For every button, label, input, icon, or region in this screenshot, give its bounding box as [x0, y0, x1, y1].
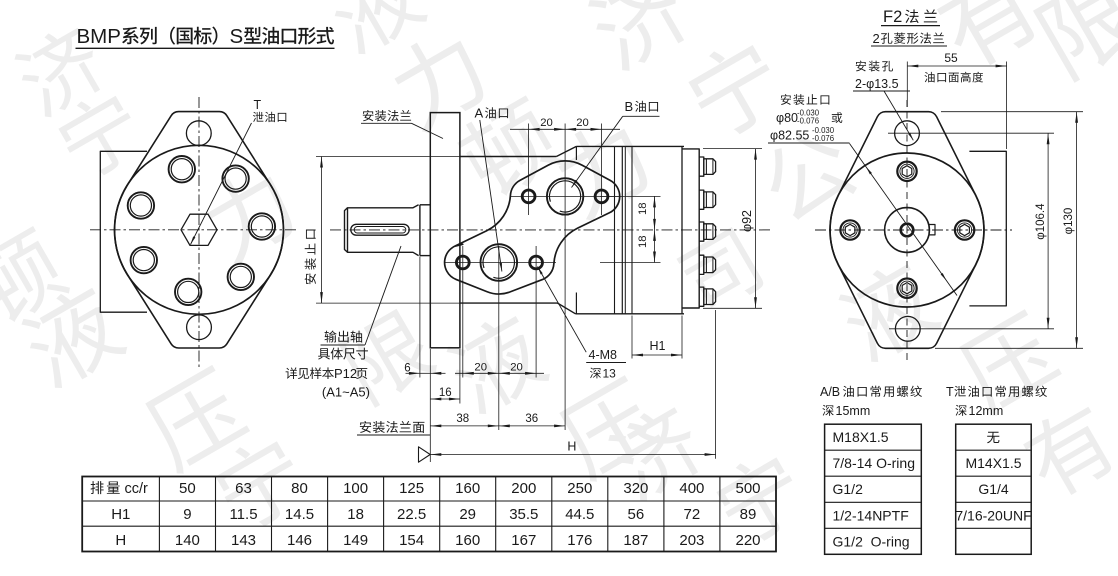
svg-text:140: 140: [175, 532, 200, 549]
svg-text:55: 55: [944, 51, 958, 65]
svg-text:2: 2: [873, 31, 880, 46]
svg-text:44.5: 44.5: [565, 506, 594, 523]
svg-text:143: 143: [231, 532, 256, 549]
svg-text:F2: F2: [883, 8, 902, 26]
svg-text:146: 146: [287, 532, 312, 549]
svg-text:50: 50: [179, 480, 196, 497]
svg-text:203: 203: [679, 532, 704, 549]
svg-text:G1/2: G1/2: [833, 481, 864, 497]
svg-text:1/2-14NPTF: 1/2-14NPTF: [833, 507, 909, 523]
svg-text:12mm: 12mm: [969, 404, 1004, 418]
svg-text:250: 250: [567, 480, 592, 497]
svg-text:20: 20: [510, 362, 523, 374]
svg-text:H1: H1: [650, 339, 666, 353]
svg-text:BMP: BMP: [77, 25, 121, 48]
svg-text:2-φ13.5: 2-φ13.5: [855, 77, 899, 91]
svg-text:18: 18: [637, 202, 649, 215]
svg-text:cc/r: cc/r: [125, 481, 149, 497]
svg-text:20: 20: [474, 362, 487, 374]
svg-text:4-M8: 4-M8: [589, 348, 618, 362]
svg-text:-0.076: -0.076: [812, 134, 834, 143]
svg-text:18: 18: [347, 506, 364, 523]
svg-text:36: 36: [525, 413, 538, 425]
svg-text:187: 187: [623, 532, 648, 549]
svg-text:φ92: φ92: [740, 210, 754, 232]
svg-text:89: 89: [740, 506, 757, 523]
svg-text:B: B: [625, 99, 634, 114]
svg-text:100: 100: [343, 480, 368, 497]
svg-text:15mm: 15mm: [836, 404, 871, 418]
svg-text:A/B: A/B: [820, 385, 840, 399]
svg-text:φ130: φ130: [1063, 208, 1075, 235]
svg-text:29: 29: [459, 506, 476, 523]
svg-text:G1/2 O-ring: G1/2 O-ring: [833, 533, 910, 549]
svg-text:176: 176: [567, 532, 592, 549]
svg-text:20: 20: [540, 117, 553, 129]
svg-text:T: T: [254, 98, 262, 112]
svg-text:11.5: 11.5: [229, 506, 257, 523]
svg-text:125: 125: [399, 480, 424, 497]
svg-text:160: 160: [455, 532, 480, 549]
svg-text:16: 16: [439, 387, 452, 399]
svg-text:φ82.55: φ82.55: [770, 129, 809, 143]
svg-text:63: 63: [235, 480, 252, 497]
svg-text:56: 56: [628, 506, 645, 523]
svg-text:160: 160: [455, 480, 480, 497]
svg-text:H: H: [115, 532, 126, 549]
svg-text:80: 80: [291, 480, 308, 497]
svg-text:7/16-20UNF: 7/16-20UNF: [955, 507, 1031, 523]
svg-text:149: 149: [343, 532, 368, 549]
svg-text:18: 18: [637, 235, 649, 248]
svg-text:7/8-14 O-ring: 7/8-14 O-ring: [833, 455, 915, 471]
svg-text:P12: P12: [334, 366, 357, 381]
svg-text:20: 20: [576, 117, 589, 129]
svg-text:9: 9: [183, 506, 191, 523]
svg-text:154: 154: [399, 532, 424, 549]
svg-text:167: 167: [511, 532, 536, 549]
svg-text:38: 38: [456, 413, 469, 425]
svg-text:220: 220: [735, 532, 760, 549]
svg-text:H: H: [567, 439, 576, 453]
svg-text:M18X1.5: M18X1.5: [833, 429, 889, 445]
svg-text:35.5: 35.5: [509, 506, 538, 523]
svg-text:M14X1.5: M14X1.5: [965, 455, 1021, 471]
svg-text:G1/4: G1/4: [978, 481, 1009, 497]
svg-text:500: 500: [735, 480, 760, 497]
svg-text:22.5: 22.5: [397, 506, 426, 523]
svg-text:φ80: φ80: [776, 111, 798, 125]
svg-text:6: 6: [404, 362, 410, 374]
svg-text:200: 200: [511, 480, 536, 497]
svg-text:H1: H1: [111, 506, 130, 523]
svg-text:(A1~A5): (A1~A5): [322, 385, 370, 400]
svg-text:T: T: [946, 385, 954, 399]
svg-text:14.5: 14.5: [285, 506, 314, 523]
svg-text:400: 400: [679, 480, 704, 497]
svg-text:-0.076: -0.076: [797, 117, 819, 126]
svg-text:S: S: [230, 25, 244, 48]
svg-text:72: 72: [684, 506, 701, 523]
svg-text:A: A: [475, 106, 484, 121]
svg-text:φ106.4: φ106.4: [1035, 203, 1047, 240]
svg-text:13: 13: [603, 367, 617, 381]
svg-text:320: 320: [623, 480, 648, 497]
